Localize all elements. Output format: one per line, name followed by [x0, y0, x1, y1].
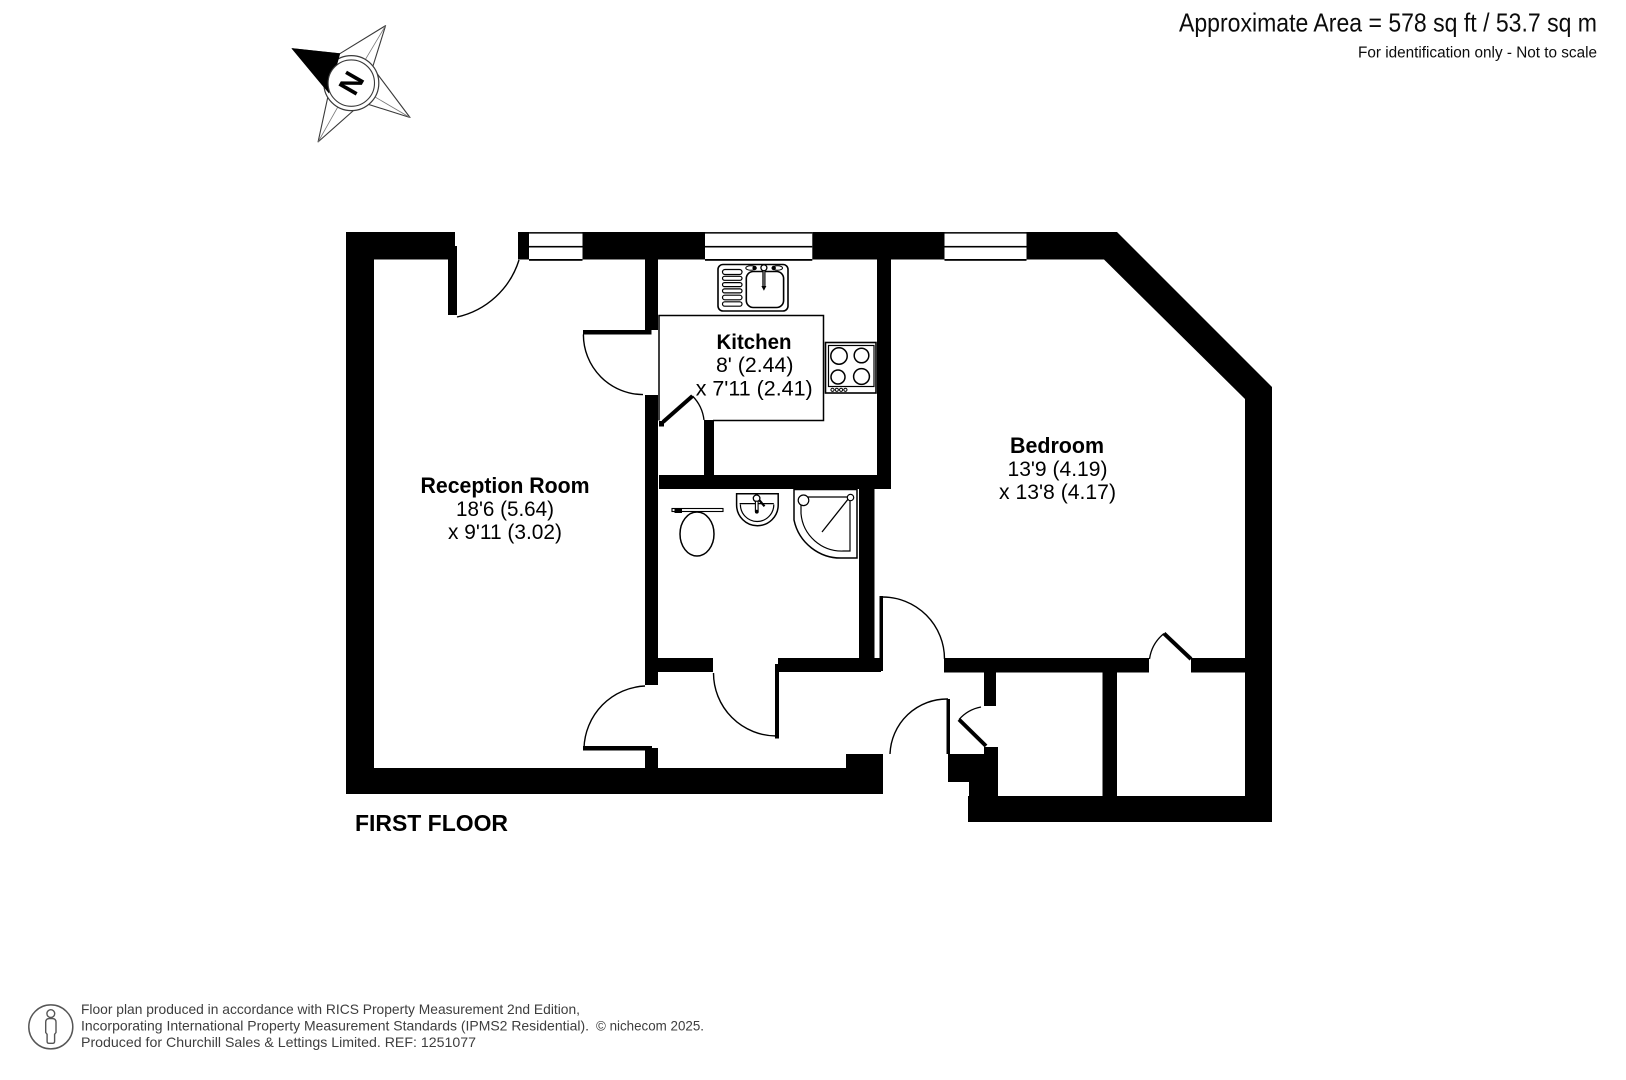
svg-text:8' (2.44): 8' (2.44)	[716, 353, 794, 377]
svg-text:Approximate Area = 578 sq ft /: Approximate Area = 578 sq ft / 53.7 sq m	[1179, 8, 1597, 38]
svg-text:Kitchen: Kitchen	[717, 330, 792, 354]
svg-text:Produced for Churchill Sales &: Produced for Churchill Sales & Lettings …	[81, 1035, 476, 1050]
svg-text:© nichecom 2025.: © nichecom 2025.	[596, 1019, 704, 1034]
svg-text:Floor plan produced in accorda: Floor plan produced in accordance with R…	[81, 1002, 580, 1017]
svg-text:Incorporating International Pr: Incorporating International Property Mea…	[81, 1019, 589, 1034]
svg-text:For identification only - Not: For identification only - Not to scale	[1358, 45, 1597, 62]
svg-text:Bedroom: Bedroom	[1010, 433, 1104, 458]
svg-text:18'6 (5.64): 18'6 (5.64)	[456, 497, 554, 521]
svg-text:FIRST FLOOR: FIRST FLOOR	[355, 810, 508, 836]
svg-text:13'9 (4.19): 13'9 (4.19)	[1008, 457, 1108, 481]
svg-text:x 9'11 (3.02): x 9'11 (3.02)	[448, 520, 562, 544]
svg-text:Reception Room: Reception Room	[421, 473, 590, 498]
svg-text:x 13'8 (4.17): x 13'8 (4.17)	[999, 480, 1116, 504]
svg-text:x 7'11 (2.41): x 7'11 (2.41)	[696, 377, 813, 401]
